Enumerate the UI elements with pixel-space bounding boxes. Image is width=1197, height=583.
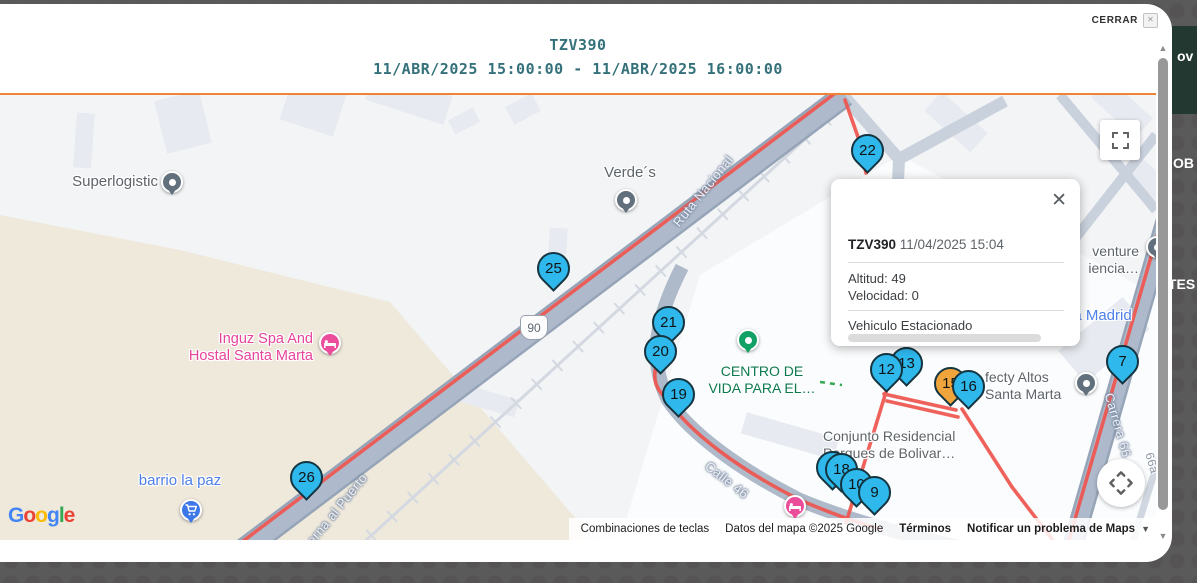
map-canvas[interactable]: SuperlogisticVerde´sInguz Spa AndHostal … [0,95,1156,540]
terms-link[interactable]: Términos [899,523,951,535]
modal-scrollbar [1156,34,1170,550]
dropdown-caret-icon[interactable] [1141,524,1150,534]
fullscreen-icon [1110,130,1131,151]
route-90-shield: 90 [520,315,548,340]
map-label-centro-de-vida[interactable]: CENTRO DEVIDA PARA EL… [708,363,815,396]
marker-number: 19 [664,380,693,409]
map-label-verdes[interactable]: Verde´s [604,165,656,182]
google-logo-letter: G [8,504,23,527]
poi-dot-icon [623,197,630,204]
cerrar-button[interactable]: CERRAR [1092,13,1158,28]
cerrar-label: CERRAR [1092,15,1138,26]
google-logo-letter: o [23,504,35,527]
keyboard-shortcuts-link[interactable]: Combinaciones de teclas [581,523,710,535]
scrollbar-up-arrow-icon[interactable] [1156,42,1170,54]
close-icon[interactable] [1143,13,1158,28]
shopping-cart-icon [185,504,198,516]
google-logo[interactable]: Google [8,504,74,528]
background-text-fragment: ov [1177,48,1193,64]
page-background: { "window": { "close_label": "CERRAR" },… [0,0,1197,583]
marker-number: 26 [292,463,321,492]
pan-arrows-icon [1108,470,1134,496]
map-label-superlogistic[interactable]: Superlogistic [72,174,158,191]
info-window-hscrollbar[interactable] [848,334,1041,342]
pan-control-button[interactable] [1097,459,1145,507]
info-timestamp: 11/04/2025 15:04 [900,237,1004,252]
info-vehicle-id: TZV390 [848,237,896,252]
map-attribution-bar: Combinaciones de teclas Datos del mapa ©… [569,518,1156,540]
map-label-venture-experiencia[interactable]: ventureiencia… [1088,243,1139,276]
bed-icon [323,337,337,349]
scrollbar-down-arrow-icon[interactable] [1156,530,1170,542]
marker-number: 12 [872,355,901,384]
map-label-inguz-spa[interactable]: Inguz Spa AndHostal Santa Marta [189,331,313,364]
background-green-band [1172,26,1197,114]
poi-pin-superlogistic[interactable] [161,171,183,193]
info-window-title: TZV390 11/04/2025 15:04 [848,237,1004,252]
report-problem-link[interactable]: Notificar un problema de Maps [967,523,1135,535]
vehicle-id-title: TZV390 [0,36,1156,54]
poi-dot-icon [745,337,752,344]
poi-pin-centro-de-vida[interactable] [737,329,759,351]
google-logo-letter: g [47,504,59,527]
marker-number: 21 [654,308,683,337]
poi-pin-fecty-altos[interactable] [1075,372,1097,394]
marker-number: 9 [860,478,889,507]
modal-header: TZV390 11/ABR/2025 15:00:00 - 11/ABR/202… [0,36,1156,78]
poi-pin-inguz-spa[interactable] [319,332,341,354]
info-window-close-icon[interactable] [1051,191,1067,210]
info-altitude: Altitud: 49 [848,271,906,287]
google-logo-letter: e [64,504,75,527]
marker-number: 7 [1108,347,1137,376]
marker-number: 22 [853,136,882,165]
map-label-barrio-la-paz[interactable]: barrio la paz [139,473,222,490]
fullscreen-button[interactable] [1100,120,1140,160]
info-status: Vehiculo Estacionado [848,318,972,334]
info-window: TZV390 11/04/2025 15:04 Altitud: 49 Velo… [831,179,1080,346]
poi-dot-icon [1083,380,1090,387]
poi-pin-verdes[interactable] [615,189,637,211]
info-divider-2 [848,310,1064,311]
poi-pin-barrio-la-paz[interactable] [180,499,202,521]
map-data-text: Datos del mapa ©2025 Google [725,523,883,535]
marker-number: 20 [646,337,675,366]
background-text-fragment: TES [1168,276,1195,292]
date-range-title: 11/ABR/2025 15:00:00 - 11/ABR/2025 16:00… [0,60,1156,78]
scrollbar-thumb[interactable] [1158,58,1168,510]
bed-icon [788,500,802,512]
poi-pin-hotel-pink[interactable] [784,495,806,517]
info-divider-1 [848,262,1064,263]
tracking-modal: CERRAR TZV390 11/ABR/2025 15:00:00 - 11/… [0,4,1172,562]
background-text-fragment: OB [1173,155,1194,171]
map-label-fecty-altos[interactable]: fecty AltosSanta Marta [985,369,1061,402]
info-speed: Velocidad: 0 [848,288,919,304]
poi-dot-icon [169,179,176,186]
marker-number: 25 [539,254,568,283]
marker-number: 16 [954,372,983,401]
google-logo-letter: o [35,504,47,527]
